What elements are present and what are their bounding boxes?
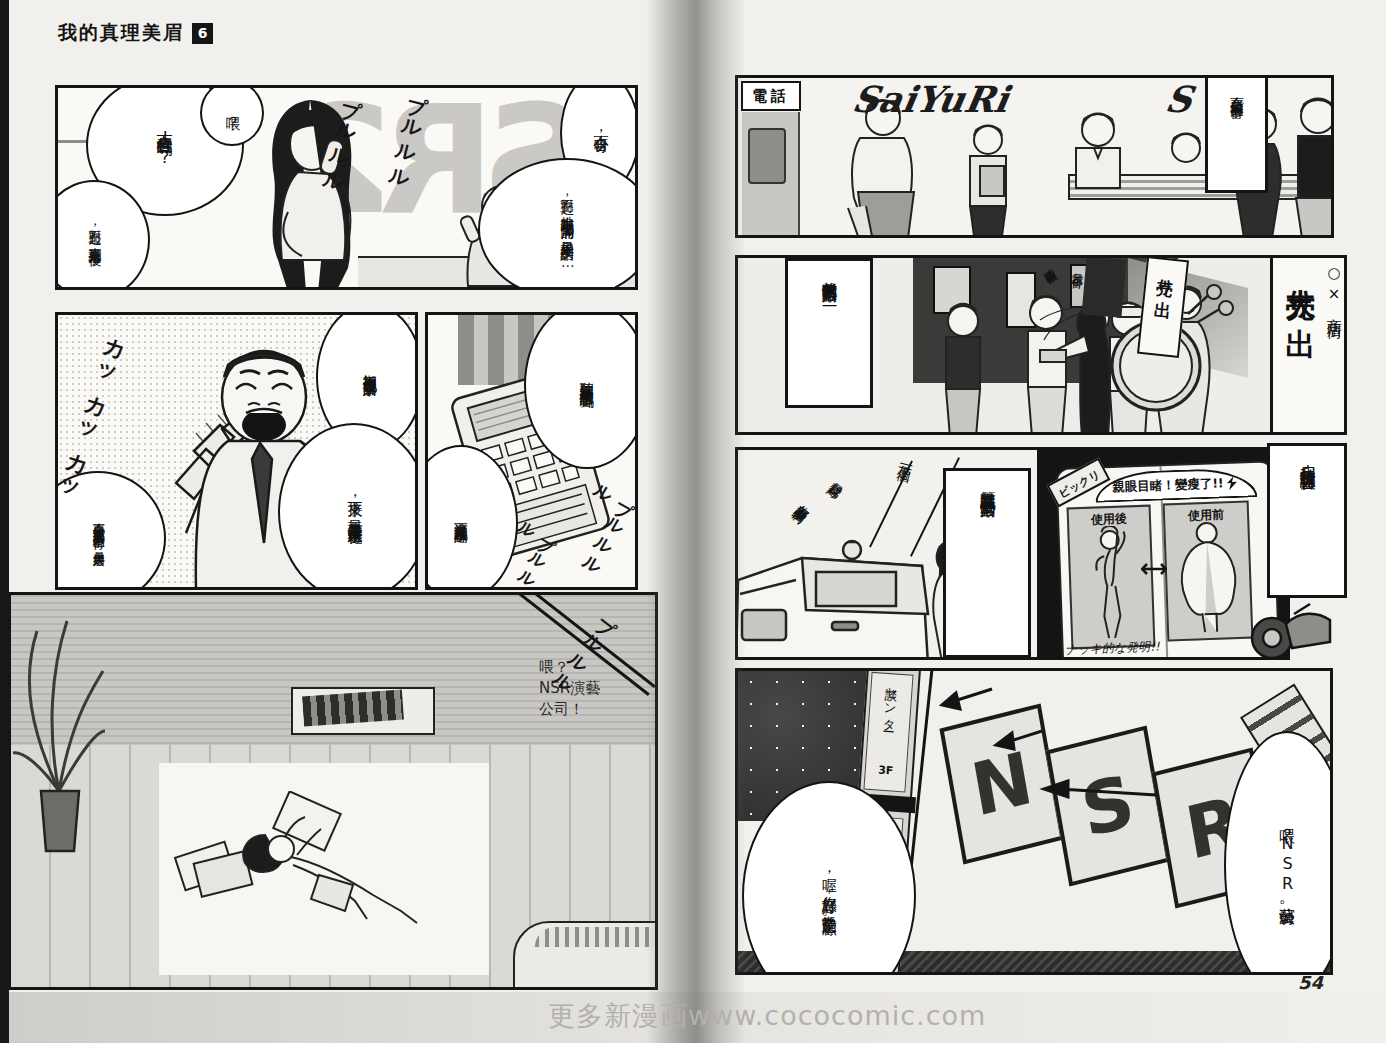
mag-headline-text: 親眼目睹！變瘦了!! — [1112, 475, 1224, 496]
big-sale-sign: ○×商店街 大売り出 — [1270, 258, 1347, 435]
scan-edge — [0, 0, 9, 1043]
sign-floor3-text: 3F — [878, 764, 894, 778]
window-pane-s: S — [1045, 725, 1170, 886]
manga-double-page-scan: 我的真理美眉 6 SR2 プルルル プルルル — [0, 0, 1386, 1043]
page-title: 我的真理美眉 — [58, 20, 184, 46]
next-one-text: 是下一個… — [894, 454, 919, 479]
sale-flag-text: 売り出 — [1146, 265, 1180, 355]
district-sign-text: ○×商店街 — [1322, 264, 1344, 434]
caption-text: 兼營業的宣傳活動—— — [819, 269, 840, 391]
speech-text: 對不起，她上午跟下午都滿滿的，如果是半夜的話…… — [557, 180, 577, 278]
speech-text: 初期投資也幾乎賺回來了… — [360, 342, 380, 412]
caption-text: 簡直就是不眠不休的營業活動。 — [976, 479, 997, 591]
sale-sign-text: 大売り出 — [1279, 264, 1323, 434]
window-letter-s: S — [1075, 758, 1140, 853]
caption-promo: 兼營業的宣傳活動—— — [785, 258, 873, 408]
speech-text: 喂？NSR演藝公司。 — [1275, 790, 1299, 940]
speech-text: 對不起，一直排到三個月後了… — [85, 201, 104, 279]
girl-lying-reading — [169, 791, 439, 931]
banner-script: SaiYuRi — [849, 78, 1012, 120]
page-number: 54 — [1298, 972, 1323, 993]
speech-text: 百合的行程嗎!? — [153, 99, 176, 191]
panel-nsr-building: 談センター 3F ㈱NSR芸能プロダクション 2F N S R 喔， — [735, 668, 1333, 975]
big-sale-sign-text: ○×商店街 大売り出 — [1279, 264, 1344, 434]
telephone-sign: 電話 — [741, 81, 801, 111]
potted-plant — [11, 611, 106, 891]
mag-after-label: 使用後 — [1091, 510, 1132, 646]
sign-center-text: 談センター — [877, 678, 901, 765]
caption-handshake: 在百貨公司的握手會， — [1205, 75, 1268, 193]
speech-text: 這下簡直就是賺翻了！ — [451, 484, 471, 562]
caption-text: 在百貨公司的握手會， — [1228, 86, 1246, 186]
motorcycle — [1246, 590, 1334, 662]
speech-text: 接下來，只要坐著等錢滾進來就行了！ — [343, 461, 365, 563]
payphone-body — [748, 128, 786, 184]
mag-before-label: 使用前 — [1188, 506, 1229, 638]
speech-text: 喂？ — [221, 105, 243, 122]
book-title-row: 我的真理美眉 6 — [58, 20, 213, 46]
telephone-sign-text: 電話 — [752, 87, 790, 106]
pointer-arrow-1 — [934, 685, 994, 713]
speech-text: 小百合要變成奶奶或是女高中生都行，真是太好用了… — [89, 496, 106, 580]
watermark: 更多新漫画www.cococomic.com — [548, 998, 986, 1034]
speech-text: 喔，您好您好，常受您照顧了。 — [818, 836, 841, 956]
dark-flag — [1082, 256, 1127, 317]
mag-note-text: ナッキ的な発明!! — [1065, 638, 1160, 658]
compare-arrow — [1141, 562, 1167, 576]
panel-ringing-phone: 聽到這不絕於耳的電話聲了嗎？ 這下簡直就是賺翻了！ プルルルル プルルル — [425, 312, 638, 590]
page-gutter-shadow — [646, 0, 746, 1043]
mag-photo-after: 使用後 — [1067, 505, 1156, 650]
speech-text: 聽到這不絕於耳的電話聲了嗎？ — [577, 342, 597, 428]
panel-laughing-manager: カッカッカッ 初期投資也幾乎賺回來了… 接下來 — [55, 312, 418, 590]
pointer-arrow-2 — [990, 727, 1044, 753]
panel-office-call: SR2 プルルル プルルル 百合的行程嗎!? — [55, 85, 638, 290]
pointer-arrow-3 — [1038, 779, 1158, 803]
im-fine-text: 我是還好… — [826, 470, 853, 497]
caption-text: 利用特技的雜誌廣告， — [1296, 454, 1318, 572]
counter-grill — [535, 927, 655, 947]
panel-office-room: プルルル 喂？ NSR演藝 公司！ — [8, 592, 658, 990]
lightning-icon — [1223, 475, 1240, 492]
sign-plate-center: 談センター 3F — [863, 672, 913, 793]
caption-nonstop: 簡直就是不眠不休的營業活動。 — [943, 468, 1031, 658]
caption-magazine: 利用特技的雜誌廣告， — [1267, 443, 1347, 598]
volume-badge: 6 — [192, 23, 213, 44]
mag-photo-before: 使用前 — [1163, 501, 1254, 642]
